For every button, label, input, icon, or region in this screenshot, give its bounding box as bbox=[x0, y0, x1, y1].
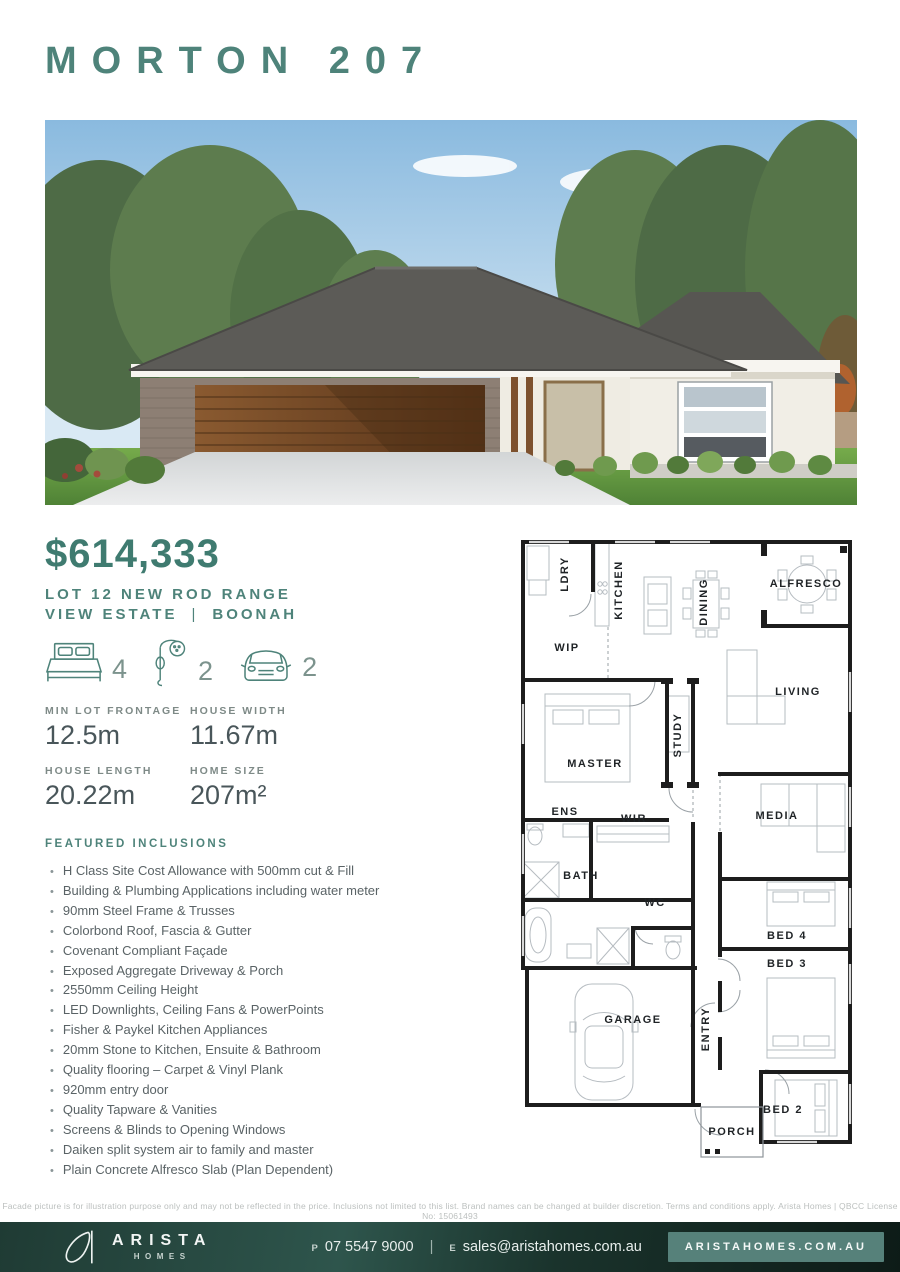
inclusion-item: Fisher & Paykel Kitchen Appliances bbox=[45, 1021, 465, 1041]
room-label-garage: GARAGE bbox=[604, 1014, 661, 1026]
lot-address: LOT 12 NEW ROD RANGE VIEW ESTATE|BOONAH bbox=[45, 585, 297, 625]
spec-label: HOME SIZE bbox=[190, 765, 335, 777]
lot-line2: VIEW ESTATE|BOONAH bbox=[45, 605, 297, 625]
brochure-page: MORTON 207 bbox=[0, 0, 900, 1272]
page-title: MORTON 207 bbox=[45, 40, 437, 83]
inclusion-item: Building & Plumbing Applications includi… bbox=[45, 882, 465, 902]
stats-row: 4 2 2 bbox=[45, 638, 317, 688]
inclusion-item: Quality Tapware & Vanities bbox=[45, 1101, 465, 1121]
price: $614,333 bbox=[45, 532, 220, 577]
room-label-ldry: LDRY bbox=[559, 556, 571, 592]
spec-value: 12.5m bbox=[45, 720, 190, 751]
room-label-master: MASTER bbox=[567, 758, 622, 770]
inclusion-item: Exposed Aggregate Driveway & Porch bbox=[45, 962, 465, 982]
room-label-study: STUDY bbox=[672, 713, 684, 758]
phone-number: 07 5547 9000 bbox=[325, 1239, 414, 1255]
inclusion-item: 20mm Stone to Kitchen, Ensuite & Bathroo… bbox=[45, 1041, 465, 1061]
inclusions-heading: FEATURED INCLUSIONS bbox=[45, 838, 228, 850]
inclusion-item: Daiken split system air to family and ma… bbox=[45, 1141, 465, 1161]
car-icon bbox=[239, 642, 293, 684]
arista-logo-icon bbox=[60, 1228, 100, 1266]
phone-prefix: P bbox=[312, 1243, 319, 1254]
inclusion-item: Screens & Blinds to Opening Windows bbox=[45, 1121, 465, 1141]
email-link[interactable]: Esales@aristahomes.com.au bbox=[449, 1239, 641, 1255]
room-label-wip: WIP bbox=[554, 642, 579, 654]
estate-separator: | bbox=[191, 606, 198, 623]
inclusion-item: Plain Concrete Alfresco Slab (Plan Depen… bbox=[45, 1161, 465, 1181]
bedrooms-stat: 4 bbox=[45, 640, 127, 686]
shower-icon bbox=[153, 638, 189, 688]
suburb-name: BOONAH bbox=[212, 606, 297, 623]
bathrooms-stat: 2 bbox=[153, 638, 213, 688]
specs-grid: MIN LOT FRONTAGE 12.5m HOUSE WIDTH 11.67… bbox=[45, 705, 375, 811]
brand-logo: ARISTA HOMES bbox=[60, 1228, 212, 1266]
room-label-media: MEDIA bbox=[756, 810, 799, 822]
house-render-photo bbox=[45, 120, 857, 505]
spec-house-length: HOUSE LENGTH 20.22m bbox=[45, 765, 190, 811]
room-label-wc: WC bbox=[644, 897, 665, 909]
brand-name: ARISTA bbox=[112, 1233, 212, 1249]
spec-label: MIN LOT FRONTAGE bbox=[45, 705, 190, 717]
spec-label: HOUSE LENGTH bbox=[45, 765, 190, 777]
inclusions-list: H Class Site Cost Allowance with 500mm c… bbox=[45, 862, 465, 1181]
spec-home-size: HOME SIZE 207m² bbox=[190, 765, 335, 811]
room-label-bath: BATH bbox=[563, 870, 599, 882]
bathrooms-count: 2 bbox=[198, 658, 213, 688]
inclusion-item: 920mm entry door bbox=[45, 1081, 465, 1101]
room-label-alfresco: ALFRESCO bbox=[770, 578, 843, 590]
inclusion-item: H Class Site Cost Allowance with 500mm c… bbox=[45, 862, 465, 882]
floor-plan: LDRY KITCHEN DINING ALFRESCO WIP STUDY L… bbox=[515, 532, 860, 1167]
brand-text: ARISTA HOMES bbox=[112, 1233, 212, 1261]
email-prefix: E bbox=[449, 1243, 456, 1254]
inclusion-item: Quality flooring – Carpet & Vinyl Plank bbox=[45, 1061, 465, 1081]
room-label-dining: DINING bbox=[698, 578, 710, 626]
email-address: sales@aristahomes.com.au bbox=[463, 1239, 642, 1255]
footer-contact: P07 5547 9000 | Esales@aristahomes.com.a… bbox=[312, 1239, 642, 1255]
bedrooms-count: 4 bbox=[112, 656, 127, 686]
spec-value: 20.22m bbox=[45, 780, 190, 811]
room-label-bed4: BED 4 bbox=[767, 930, 807, 942]
spec-value: 207m² bbox=[190, 780, 335, 811]
bed-icon bbox=[45, 640, 103, 686]
room-label-entry: ENTRY bbox=[700, 1007, 712, 1051]
spec-min-lot-frontage: MIN LOT FRONTAGE 12.5m bbox=[45, 705, 190, 751]
estate-name: VIEW ESTATE bbox=[45, 606, 177, 623]
room-label-kitchen: KITCHEN bbox=[613, 560, 625, 619]
phone-link[interactable]: P07 5547 9000 bbox=[312, 1239, 414, 1255]
inclusion-item: Colorbond Roof, Fascia & Gutter bbox=[45, 922, 465, 942]
brand-subtitle: HOMES bbox=[134, 1252, 191, 1261]
website-button[interactable]: ARISTAHOMES.COM.AU bbox=[668, 1232, 884, 1262]
room-label-ens: ENS bbox=[551, 806, 578, 818]
lot-line1: LOT 12 NEW ROD RANGE bbox=[45, 585, 297, 605]
room-label-porch: PORCH bbox=[708, 1126, 755, 1138]
floor-plan-drawing bbox=[515, 532, 860, 1167]
spec-house-width: HOUSE WIDTH 11.67m bbox=[190, 705, 335, 751]
inclusion-item: Covenant Compliant Façade bbox=[45, 942, 465, 962]
room-label-bed2: BED 2 bbox=[763, 1104, 803, 1116]
room-label-wir: WIR bbox=[621, 813, 647, 825]
room-label-bed3: BED 3 bbox=[767, 958, 807, 970]
garage-count: 2 bbox=[302, 654, 317, 684]
room-label-living: LIVING bbox=[775, 686, 821, 698]
inclusion-item: 90mm Steel Frame & Trusses bbox=[45, 902, 465, 922]
contact-divider: | bbox=[430, 1239, 434, 1255]
disclaimer-text: Facade picture is for illustration purpo… bbox=[0, 1201, 900, 1221]
house-render-illustration bbox=[45, 120, 857, 505]
footer-bar: ARISTA HOMES P07 5547 9000 | Esales@aris… bbox=[0, 1222, 900, 1272]
inclusion-item: LED Downlights, Ceiling Fans & PowerPoin… bbox=[45, 1001, 465, 1021]
garage-stat: 2 bbox=[239, 642, 317, 684]
inclusion-item: 2550mm Ceiling Height bbox=[45, 981, 465, 1001]
spec-value: 11.67m bbox=[190, 720, 335, 751]
spec-label: HOUSE WIDTH bbox=[190, 705, 335, 717]
